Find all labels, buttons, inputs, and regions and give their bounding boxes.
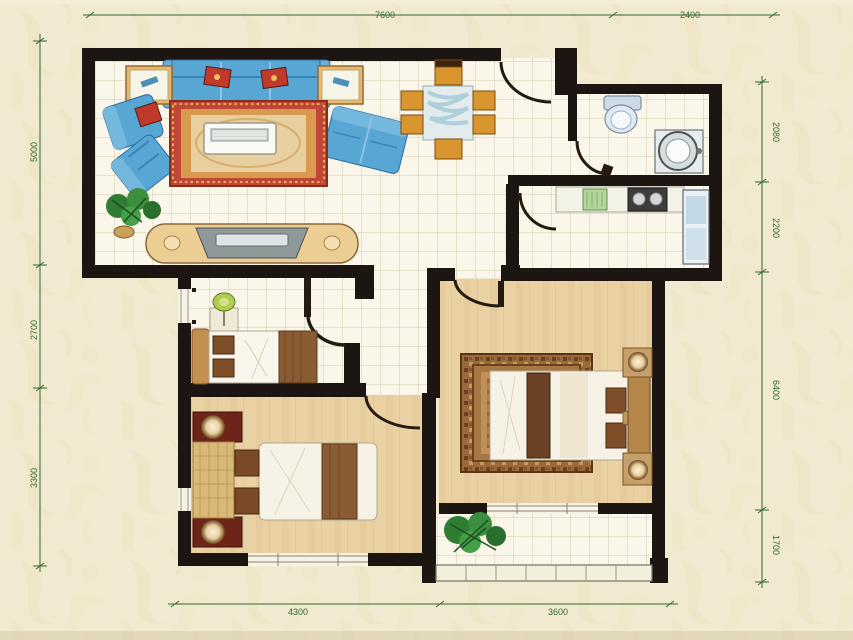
svg-text:3600: 3600	[548, 607, 568, 617]
svg-text:2200: 2200	[771, 218, 781, 238]
svg-text:7600: 7600	[375, 10, 395, 20]
svg-text:1700: 1700	[771, 535, 781, 555]
svg-text:5000: 5000	[29, 142, 39, 162]
svg-text:2080: 2080	[771, 122, 781, 142]
svg-text:6400: 6400	[771, 380, 781, 400]
svg-text:3300: 3300	[29, 468, 39, 488]
svg-text:4300: 4300	[288, 607, 308, 617]
svg-text:2400: 2400	[680, 10, 700, 20]
svg-text:2700: 2700	[29, 320, 39, 340]
